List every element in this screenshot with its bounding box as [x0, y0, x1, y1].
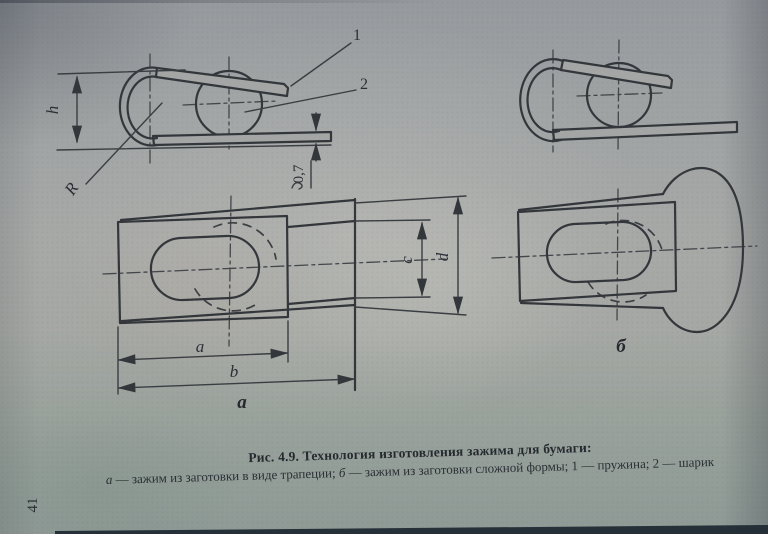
centerline-horizontal [492, 246, 757, 258]
dim-label-c: c [397, 256, 416, 264]
scan-bottom-bar [55, 525, 768, 534]
dim-label-b: b [230, 362, 239, 381]
figure-part-label-a: а [237, 392, 247, 413]
flap-rectangle [518, 202, 676, 301]
scanned-book-page: h R 0,7 1 2 [0, 0, 768, 534]
ball-centerline-horizontal [577, 93, 662, 96]
callout-1-leader [291, 43, 351, 86]
lower-spring-strip [153, 132, 331, 145]
slot-outline [547, 222, 651, 282]
ext-line-c-bottom [355, 297, 430, 298]
callout-1-label: 1 [353, 27, 361, 44]
callout-2-label: 2 [360, 76, 368, 93]
dim-label-thickness: 0,7 [291, 164, 307, 183]
dim-label-r: R [60, 179, 82, 200]
centerline-vertical [617, 189, 618, 320]
plan-view-blank-b: б [492, 168, 757, 357]
dim-label-a: a [196, 337, 205, 356]
spring-loop-inner [128, 77, 157, 139]
lower-spring-strip [553, 122, 737, 140]
plan-view-blank-a: a b c d а [103, 183, 466, 413]
figure-part-label-b: б [616, 336, 627, 357]
tail-top-edge [288, 221, 355, 227]
ext-line-d-bottom [355, 307, 466, 315]
ext-line-c-top [355, 220, 430, 221]
tail-bottom-edge [288, 298, 355, 304]
blank-bottom-edge [521, 303, 663, 308]
page-number: 41 [20, 492, 46, 518]
dim-label-d: d [433, 252, 452, 261]
dim-label-h: h [43, 106, 62, 115]
ext-line-d-top [355, 196, 466, 203]
base-line [57, 145, 331, 150]
spring-loop-inner [528, 68, 561, 132]
centerline-horizontal [103, 259, 445, 274]
side-view-clip-b [520, 40, 737, 152]
side-view-clip-a: h R 0,7 1 2 [43, 27, 368, 199]
